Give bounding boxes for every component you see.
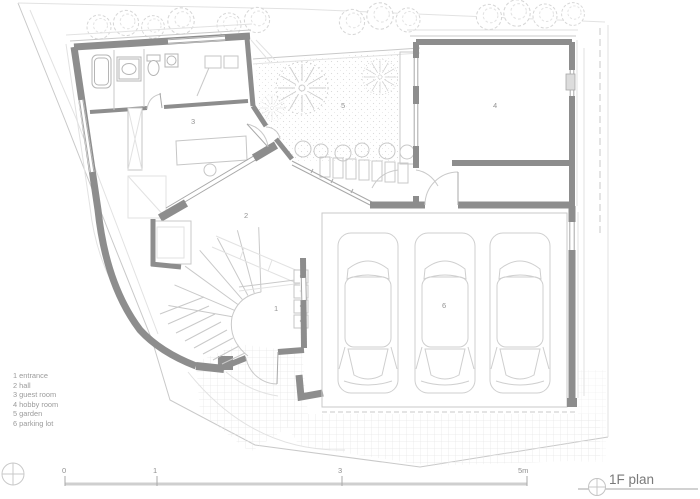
washer (165, 54, 178, 67)
tree-icon (367, 3, 393, 29)
tree-icon (476, 4, 501, 29)
chair (204, 164, 216, 176)
bathroom-sink (117, 57, 141, 81)
car (338, 233, 398, 393)
scale-tick-1: 1 (153, 466, 157, 475)
legend: 1 entrance 2 hall 3 guest room 4 hobby r… (13, 371, 58, 429)
tree-icon (562, 3, 585, 26)
stairs (160, 227, 298, 364)
label-guest-room: 3 (191, 117, 195, 126)
tree-icon (168, 8, 194, 34)
parking-lot (322, 172, 577, 412)
desk (176, 136, 247, 165)
label-entrance: 1 (274, 304, 278, 313)
tree-icon (504, 0, 530, 26)
tree-icon (339, 9, 364, 34)
legend-item: 5 garden (13, 409, 58, 419)
garden (251, 40, 420, 183)
counter (224, 56, 238, 68)
tree-icon (396, 8, 420, 32)
bathroom (90, 49, 248, 112)
label-garden: 5 (341, 101, 345, 110)
guest-room (128, 108, 247, 218)
scale-tick-5m: 5m (518, 466, 528, 475)
scale-tick-3: 3 (338, 466, 342, 475)
toilet (147, 55, 160, 76)
tree-icon (87, 15, 111, 39)
car (415, 233, 475, 393)
car (490, 233, 550, 393)
label-parking-lot: 6 (442, 301, 446, 310)
bathtub (92, 55, 111, 88)
tree-icon (244, 7, 269, 32)
label-hobby-room: 4 (493, 101, 497, 110)
north-arrow-icon (2, 463, 24, 485)
floor-plan-page: 1 2 3 4 5 6 0 1 3 5m 1F plan 1 entrance … (0, 0, 700, 499)
plan-title: 1F plan (609, 472, 654, 487)
hobby-room (414, 42, 575, 206)
tree-icon (533, 4, 557, 28)
legend-item: 2 hall (13, 381, 58, 391)
floor-plan-drawing: 1 2 3 4 5 6 0 1 3 5m 1F plan (0, 0, 700, 499)
title-block: 1F plan (578, 472, 698, 496)
legend-item: 4 hobby room (13, 400, 58, 410)
label-hall: 2 (244, 211, 248, 220)
legend-item: 6 parking lot (13, 419, 58, 429)
scale-tick-0: 0 (62, 466, 66, 475)
legend-item: 3 guest room (13, 390, 58, 400)
counter (205, 56, 221, 68)
scale-bar: 0 1 3 5m (62, 466, 528, 486)
window-shutter (566, 74, 575, 90)
legend-item: 1 entrance (13, 371, 58, 381)
